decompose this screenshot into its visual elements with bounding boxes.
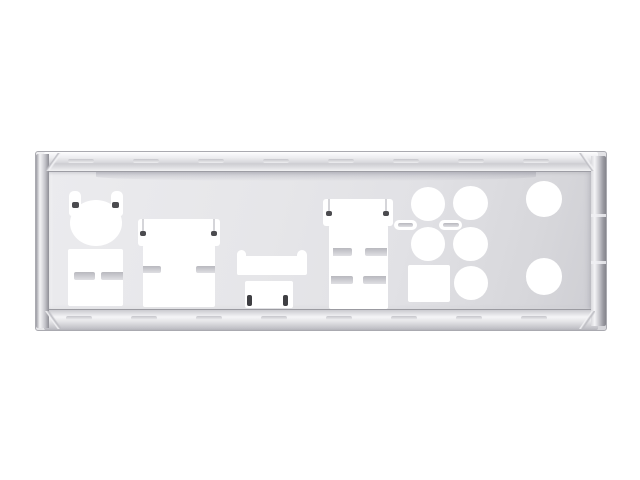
dvi2-pin-hole-left <box>326 211 332 216</box>
ps2-tab-pin-left <box>72 202 79 208</box>
top-rim-tick <box>458 159 484 163</box>
io-shield-plate <box>35 151 607 331</box>
bottom-rim-tick <box>456 316 482 320</box>
product-photo-canvas <box>0 0 640 480</box>
bottom-rim-tick <box>326 316 352 320</box>
square-hole <box>408 265 450 302</box>
ps2-tab-pin-right <box>112 202 119 208</box>
top-rim-tick <box>328 159 354 163</box>
bottom-rim-tick <box>261 316 287 320</box>
bottom-rim-tick <box>196 316 222 320</box>
audio-jack-hole-3 <box>411 227 446 261</box>
audio-jack-hole-4 <box>453 227 488 261</box>
top-rim-tick <box>263 159 289 163</box>
dvi2-notch-row2-right <box>363 276 386 285</box>
optical-pill-right-bar <box>443 223 459 228</box>
dvi1-top-hole <box>138 219 220 246</box>
usb-divider-right <box>101 272 124 280</box>
bottom-rim-tick <box>66 316 92 320</box>
cutout-layer <box>36 152 606 330</box>
usb-divider-left <box>74 272 95 280</box>
round-hole-bottom-right <box>526 258 562 295</box>
dvi1-pin-hole-left <box>140 231 146 236</box>
dvi1-notch-right <box>196 266 215 274</box>
top-rim-tick <box>523 159 549 163</box>
dvi2-bottom-hole <box>329 225 388 309</box>
dvi2-notch-row1-left <box>333 248 352 256</box>
dvi1-notch-left <box>143 266 162 274</box>
bottom-rim-tick <box>391 316 417 320</box>
round-hole-top-right <box>526 181 562 217</box>
dvi1-bottom-hole <box>143 245 215 307</box>
bottom-rim-tick <box>131 316 157 320</box>
audio-jack-hole-1 <box>411 187 446 221</box>
top-rim-tick <box>393 159 419 163</box>
audio-jack-hole-2 <box>453 186 488 220</box>
dvi2-pin-hole-right <box>383 211 389 216</box>
dvi1-pin-hole-right <box>211 231 217 236</box>
spdif-slot-right <box>283 295 289 306</box>
optical-pill-left-bar <box>398 223 413 228</box>
top-rim-tick <box>198 159 224 163</box>
hdmi-bar-hole <box>237 256 307 275</box>
top-rim-tick <box>133 159 159 163</box>
top-rim-tick <box>68 159 94 163</box>
dvi2-notch-row1-right <box>365 248 387 256</box>
dvi2-notch-row2-left <box>331 276 353 285</box>
audio-jack-hole-5 <box>454 266 488 300</box>
bottom-rim-tick <box>521 316 547 320</box>
spdif-slot-left <box>247 295 253 306</box>
